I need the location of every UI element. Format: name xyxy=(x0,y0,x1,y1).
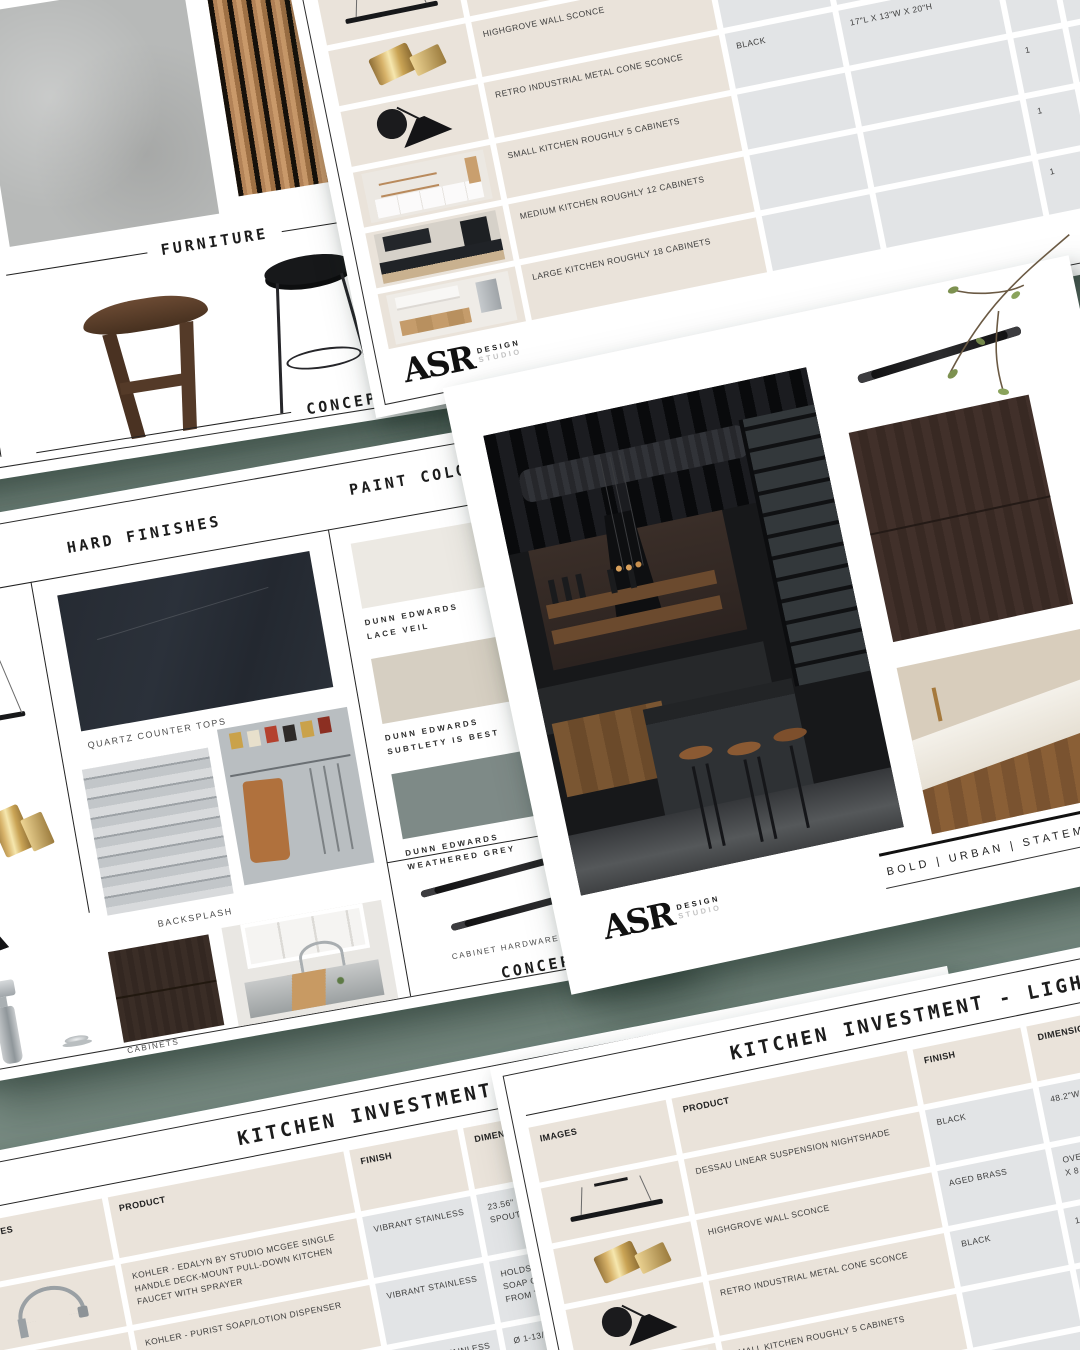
collage-canvas: WALLPAPER + PANELING FURNITURE CONCEPT B… xyxy=(0,0,1080,1350)
quartz-countertop-swatch xyxy=(57,551,333,731)
hard-finishes-title: HARD FINISHES xyxy=(66,512,223,557)
faucet-icon xyxy=(0,1270,118,1347)
furniture-title-text: FURNITURE xyxy=(160,224,270,259)
cabinet-door-swatch xyxy=(108,934,224,1042)
cell-qty: 1 xyxy=(1013,28,1073,93)
cell-qty: 2 xyxy=(1001,0,1061,33)
backsplash-label: BACKSPLASH xyxy=(157,906,234,929)
counter-photo xyxy=(897,623,1080,834)
sink-photo xyxy=(221,900,398,1027)
air-switch-icon xyxy=(45,1014,108,1067)
backsplash-rail-panel xyxy=(217,707,374,886)
dark-kitchen-photo xyxy=(483,367,904,895)
asr-wordmark: ASR xyxy=(401,344,476,386)
asr-wordmark: ASR xyxy=(600,900,675,942)
hard-finishes-text: HARD FINISHES xyxy=(66,512,223,557)
asr-logo: ASR DESIGN STUDIO xyxy=(600,890,723,942)
backsplash-tile-swatch xyxy=(82,748,234,916)
cell-qty: 1 xyxy=(1038,150,1080,215)
concrete-swatch xyxy=(0,0,219,247)
cell-qty: 1 xyxy=(1026,89,1080,154)
pendant-icon xyxy=(0,604,56,801)
soap-dispenser-icon xyxy=(0,966,49,1080)
